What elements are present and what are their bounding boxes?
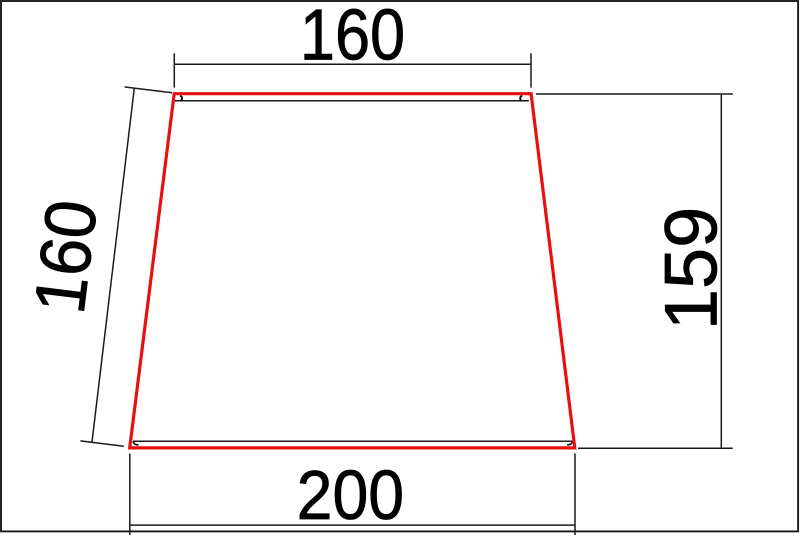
svg-text:160: 160 (300, 0, 405, 76)
svg-text:159: 159 (649, 207, 732, 330)
svg-text:200: 200 (297, 457, 404, 535)
svg-text:160: 160 (19, 196, 113, 318)
